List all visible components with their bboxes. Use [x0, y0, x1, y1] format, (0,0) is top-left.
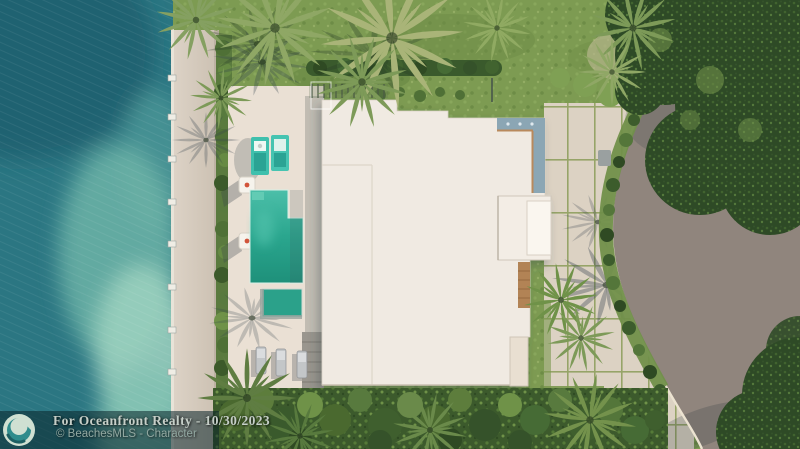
house	[322, 100, 551, 386]
swimming-pool	[250, 190, 303, 283]
watermark-attribution: © BeachesMLS - Character	[56, 428, 197, 440]
wave-logo-icon	[2, 413, 36, 447]
watermark-text: For Oceanfront Realty - 10/30/2023	[53, 413, 270, 429]
scene-rendering	[0, 0, 800, 449]
garage-roof	[498, 196, 551, 260]
spa	[262, 289, 302, 317]
utility-box	[598, 150, 611, 166]
water-ripples	[0, 0, 173, 449]
aerial-property-rendering: For Oceanfront Realty - 10/30/2023 © Bea…	[0, 0, 800, 449]
pool-steps	[252, 192, 264, 200]
wood-deck	[518, 262, 530, 308]
rear-extension	[510, 337, 528, 386]
